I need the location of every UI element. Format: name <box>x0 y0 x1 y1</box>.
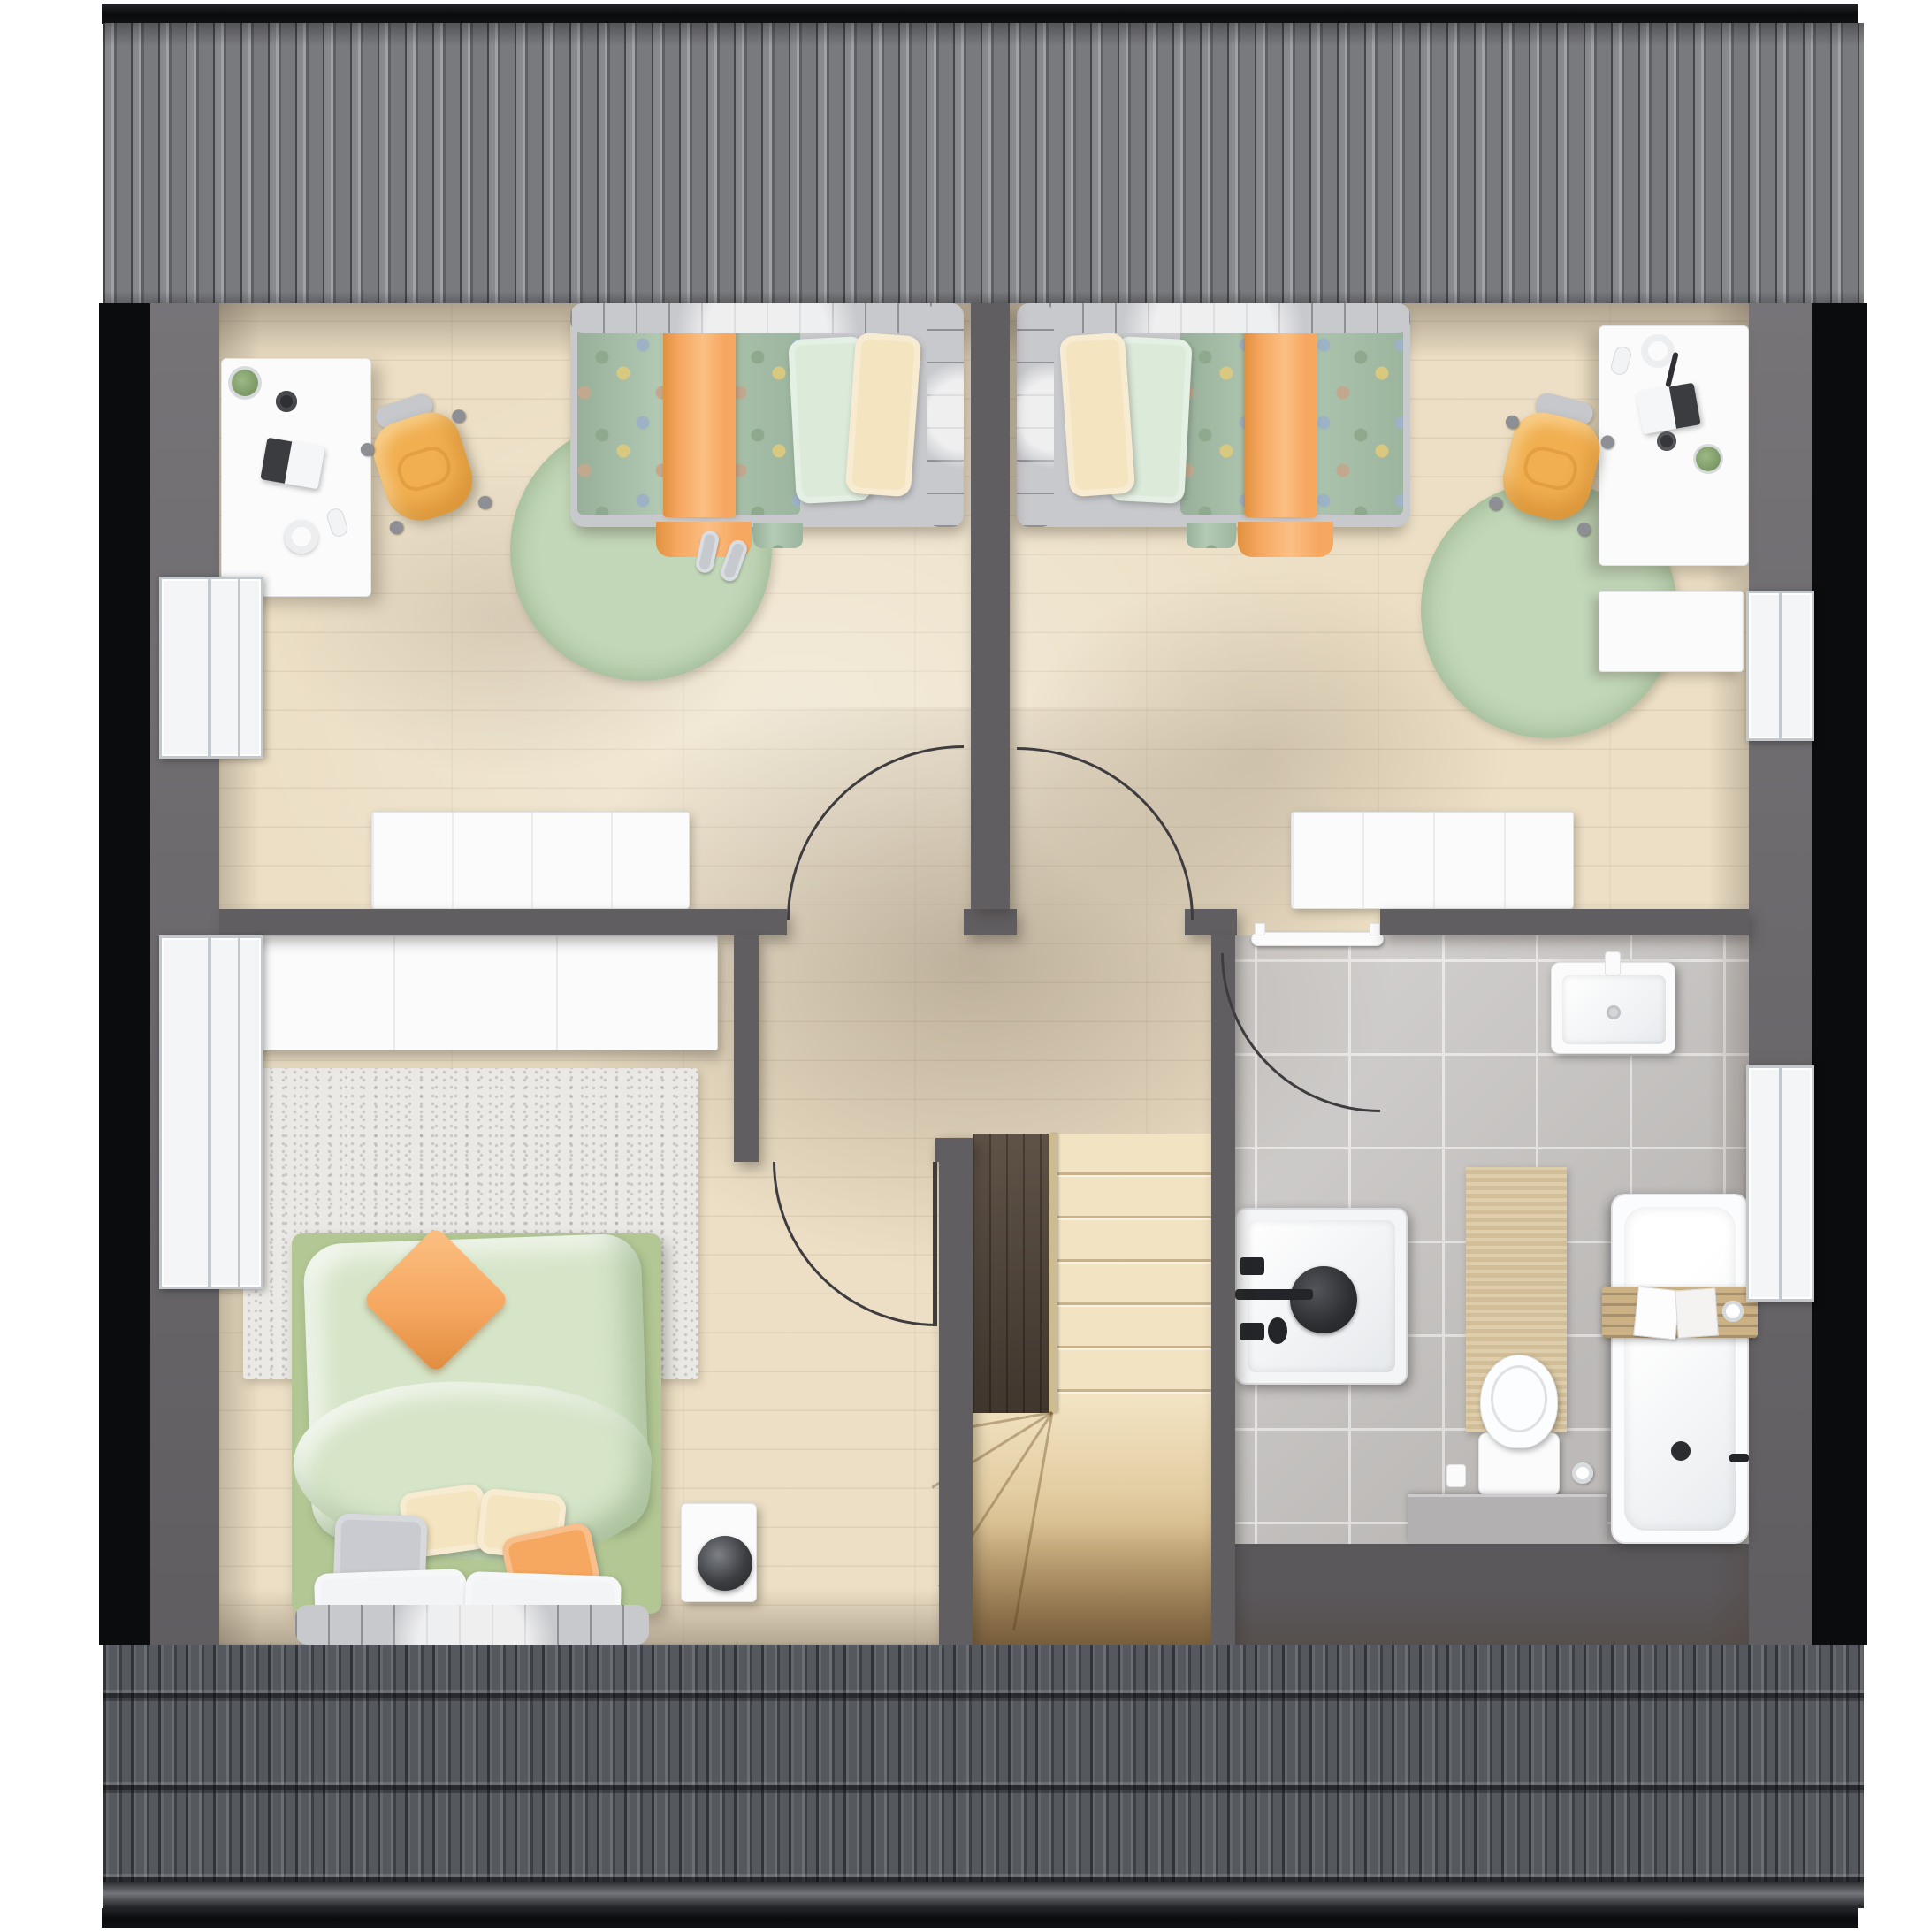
window-bathroom <box>1746 1065 1814 1302</box>
bed-headboard-right <box>1017 303 1054 527</box>
shower-drain <box>1290 1266 1357 1333</box>
plant-icon <box>232 370 258 396</box>
wall-stairwell-west <box>939 1138 973 1645</box>
magazine <box>1675 1287 1719 1338</box>
towel-rail-bracket <box>1255 923 1265 935</box>
toilet-paper-holder <box>1446 1464 1466 1487</box>
roof-top <box>103 23 1864 303</box>
roof-gutter <box>103 1882 1864 1908</box>
bed-headboard-master <box>295 1605 649 1645</box>
wall-stair-bath <box>1211 935 1235 1645</box>
radiator-right <box>1291 812 1574 909</box>
mug-icon <box>276 391 297 412</box>
wall-master-east <box>734 935 759 1162</box>
stairwell-void <box>973 1134 1052 1413</box>
wall-bathroom-north <box>1380 909 1749 935</box>
socket-icon <box>1657 431 1676 451</box>
headphones-icon <box>1641 334 1675 368</box>
window-right-bedroom <box>1746 591 1814 741</box>
roof-bottom-tiles <box>103 1645 1864 1882</box>
wall-center-dividing <box>971 303 1010 909</box>
toilet <box>1478 1355 1560 1496</box>
magazine <box>1633 1287 1681 1340</box>
headphones-icon <box>285 520 318 554</box>
shower-arm <box>1235 1289 1313 1300</box>
tub-faucet <box>1729 1454 1749 1462</box>
basin-drain <box>1607 1005 1621 1019</box>
tub-drain <box>1671 1441 1691 1461</box>
bathtub <box>1611 1194 1749 1544</box>
roof-edge-bottom <box>102 1908 1858 1928</box>
shower-valve <box>1240 1257 1264 1275</box>
table-lamp <box>698 1536 752 1591</box>
bed-left <box>570 303 964 527</box>
exterior-shadow-left <box>99 303 150 1645</box>
stair-stringer <box>1049 1134 1057 1413</box>
cup-icon <box>1722 1301 1744 1322</box>
bed-frame-rail-left <box>570 303 964 333</box>
stair-treads-straight <box>1052 1134 1211 1399</box>
orange-blanket-left <box>663 326 736 517</box>
bath-caddy <box>1602 1287 1758 1338</box>
window-left-bedroom <box>159 577 263 759</box>
wardrobe <box>230 935 718 1050</box>
staircase <box>973 1134 1211 1645</box>
bed-right <box>1017 303 1410 527</box>
wall-kids-south-left <box>219 909 787 935</box>
duvet-drape-right <box>1187 523 1236 548</box>
pillow-cream-left <box>845 332 922 498</box>
duvet-drape-left <box>753 523 803 548</box>
floor-plan <box>0 0 1931 1932</box>
shower-handle <box>1268 1317 1287 1344</box>
knee-wall-right <box>1749 303 1812 1645</box>
plant-icon <box>1696 447 1721 471</box>
shower-valve <box>1240 1323 1264 1340</box>
cabinet-right <box>1599 591 1744 672</box>
radiator-left <box>371 812 690 909</box>
door-leaf-master <box>933 1162 937 1326</box>
bed-frame-rail-right <box>1017 303 1410 333</box>
blanket-drape-right <box>1238 522 1333 557</box>
bathroom-ledge <box>1408 1494 1607 1544</box>
bed-headboard-left <box>927 303 964 527</box>
wall-between-doors <box>964 909 1017 935</box>
exterior-shadow-right <box>1812 303 1867 1645</box>
double-bed <box>292 1233 661 1645</box>
winder-tread-edge <box>1012 1412 1053 1630</box>
orange-blanket-right <box>1245 326 1317 517</box>
towel-rail <box>1251 932 1384 946</box>
towel-rail-bracket <box>1370 923 1380 935</box>
pillow-cream-right <box>1059 332 1136 498</box>
toilet-brush <box>1572 1462 1593 1484</box>
roof-ridge-top <box>102 4 1858 24</box>
basin-faucet <box>1605 951 1621 976</box>
window-master-bedroom <box>159 935 263 1289</box>
